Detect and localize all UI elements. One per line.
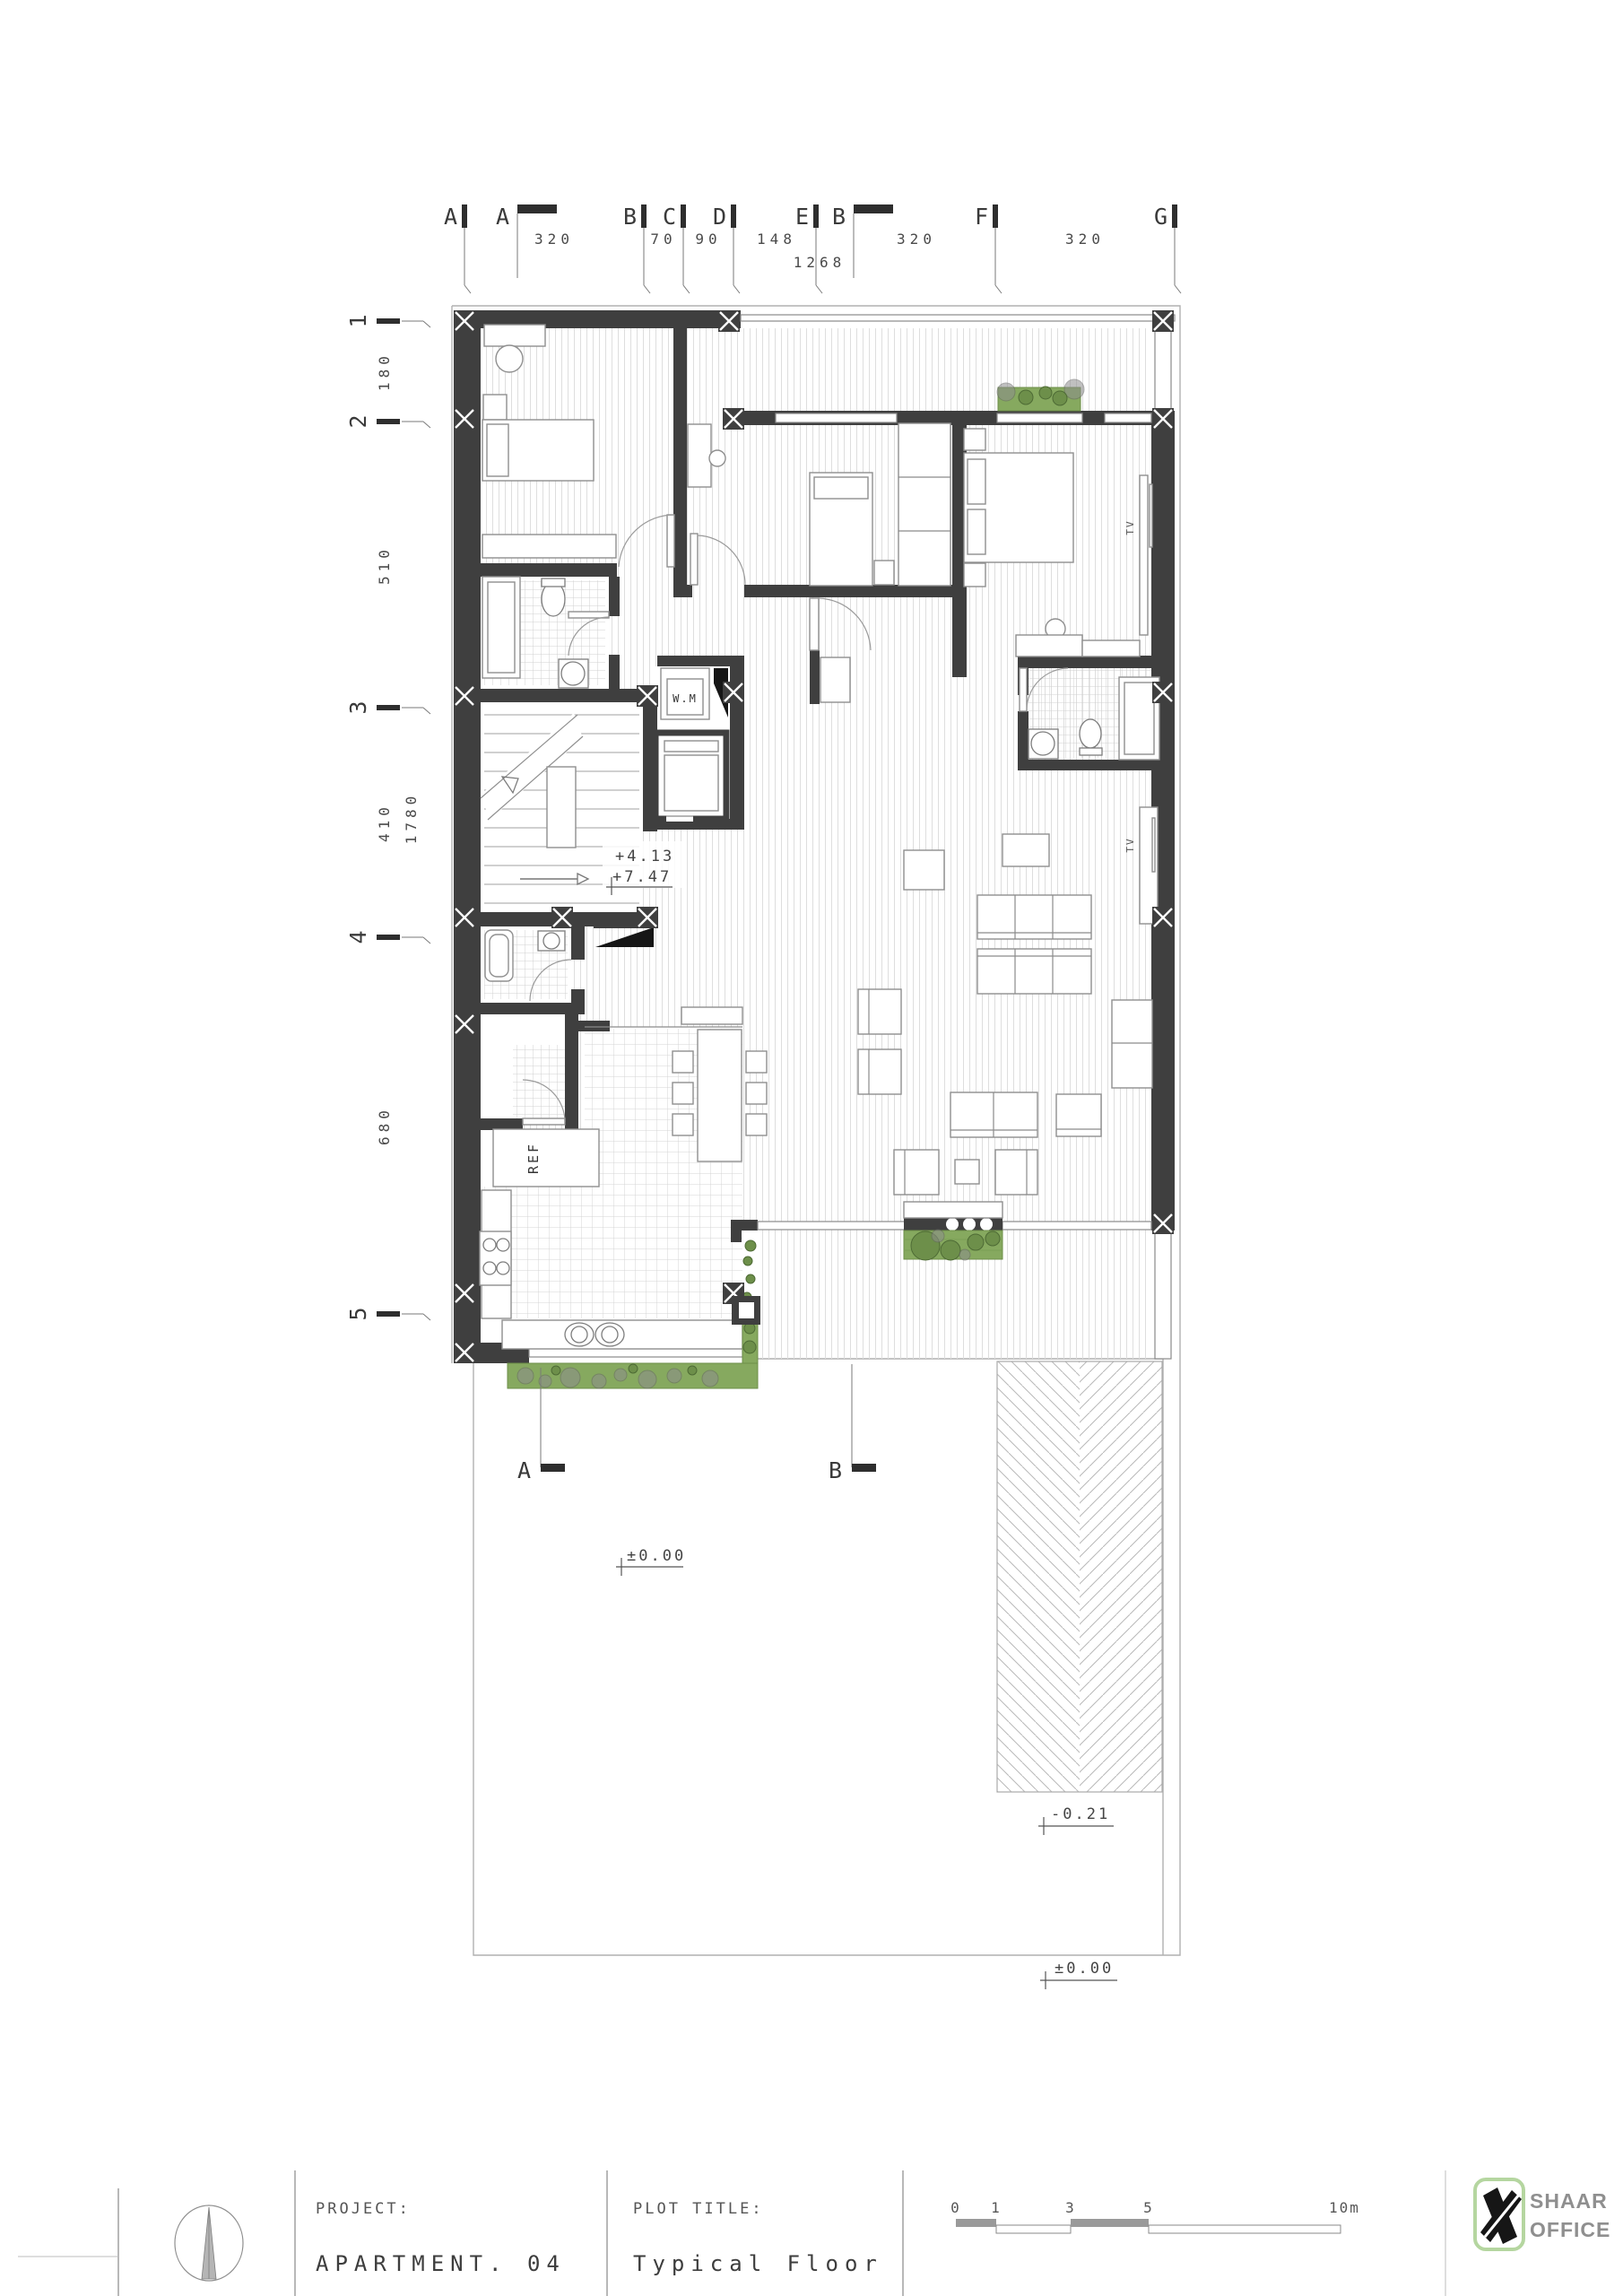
scale-tick-5: 5 [1143,2199,1154,2216]
bed1-south-wall [454,563,617,577]
column-icon [551,907,573,928]
bed2-lamp [709,450,725,466]
grid-row-label: 1 [345,314,371,327]
bed1-pillow [487,424,508,476]
balcony-parapet [741,315,1175,321]
grid-row-5: 5 [345,1307,430,1320]
column-icon [454,685,475,707]
chair [673,1083,693,1104]
dim-top: 148 [757,230,796,248]
section-bottom-a-label: A [517,1457,531,1483]
bed1-dresser [482,535,616,558]
master-window-1 [997,413,1082,422]
plot-title-value: Typical Floor [633,2251,883,2276]
bed2-nightstand [874,561,894,585]
column-icon [454,907,475,928]
level-stair-upper: +4.13 [615,848,674,865]
lounge-chair [894,1150,939,1195]
column-icon [1152,907,1174,928]
grid-row-1: 1 [345,314,430,327]
grid-row-3: 3 [345,700,430,714]
grid-row-label: 2 [345,414,371,428]
bedroom2-window [776,413,897,422]
bed1-stool [496,345,523,372]
bed2-wardrobe [898,423,950,586]
grid-col-label: E [795,204,809,230]
dim-left-total: 1780 [403,792,420,845]
fridge-box [493,1129,599,1187]
armchair [858,1049,901,1094]
project-label: PROJECT: [316,2200,411,2218]
dim-top: 320 [897,230,936,248]
dim-top: 320 [534,230,574,248]
chair [673,1114,693,1135]
armchair [1056,1094,1101,1136]
grid-col-label: G [1154,204,1167,230]
dim-top: 320 [1065,230,1105,248]
grid-col-D: D [713,204,740,293]
dim-top: 70 [650,230,676,248]
section-top-b-label: B [832,204,846,230]
master-bath-south-wall [1018,760,1163,770]
master-window-2 [1105,413,1151,422]
partition-bed1-bed2 [673,328,687,589]
kitchen-planter [508,1363,758,1388]
scale-bar: 0 1 3 5 10m [950,2199,1360,2233]
grid-row-4: 4 [345,930,430,944]
drawing-sheet: W.M [0,0,1623,2296]
logo-line2: OFFICE [1530,2218,1610,2241]
column-icon [718,310,740,332]
chaise [1112,1000,1152,1088]
grid-col-label: B [623,204,637,230]
kitchen-upper-cabinet [681,1007,742,1024]
dim-top-total: 1268 [794,254,846,271]
lounge-chair [995,1150,1037,1195]
column-icon [454,408,475,430]
grid-row-2: 2 [345,414,430,428]
grid-row-label: 4 [345,930,371,944]
grid-col-B: B [623,204,650,293]
grid-col-E: E [795,204,822,293]
master-nightstand-2 [964,563,985,587]
column-icon [1152,1213,1174,1234]
north-arrow-icon [175,2205,243,2281]
grid-col-label: C [663,204,676,230]
wm-label: W.M [673,692,698,705]
ref-label: REF [525,1142,542,1174]
project-value: APARTMENT. 04 [316,2251,566,2276]
grid-rows: 1 2 3 4 5 180 510 410 1780 680 [345,314,430,1320]
chair [673,1051,693,1073]
elevator [655,733,726,822]
column-icon [1152,310,1174,332]
tv-living-label: TV [1124,837,1136,852]
tv-bedroom-label: TV [1124,519,1136,535]
living-tv-icon [1152,818,1155,872]
grid-columns: A B C D E F G [444,204,1181,293]
grid-col-label: D [713,204,726,230]
column-icon [1152,682,1174,703]
title-block: PROJECT: APARTMENT. 04 PLOT TITLE: Typic… [18,2170,1610,2296]
hall-wall [810,650,820,704]
living-window-east [1002,1222,1151,1230]
master-south-wall [1018,656,1163,668]
scale-tick-0: 0 [950,2199,961,2216]
hall-cabinet [820,657,850,702]
grid-col-label: F [975,204,988,230]
master-toilet [1080,719,1101,748]
scale-tick-1: 1 [991,2199,1002,2216]
grid-col-C: C [663,204,690,293]
dim-left: 410 [376,803,393,842]
armchair [858,989,901,1034]
column-icon [454,310,475,332]
master-tv-icon [1150,484,1152,547]
storage-south-wall [454,1118,523,1130]
core-north-wall [454,689,657,702]
master-vanity-2 [1082,640,1140,657]
floor-plan-drawing: W.M [0,0,1623,2296]
exterior-wall-west [454,310,481,1363]
bed1-nightstand [483,395,507,420]
level-ramp: -0.21 [1051,1805,1110,1823]
column-icon [454,1283,475,1304]
grid-col-label: A [444,204,457,230]
grid-col-A: A [444,204,471,293]
level-street: ±0.00 [1055,1960,1114,1978]
level-stair-lower: +7.47 [612,868,672,886]
toilet-1 [542,582,565,616]
section-bottom-b-label: B [829,1457,842,1483]
dining-chair [1002,834,1049,866]
terrace-east-parapet [1155,1231,1171,1359]
scale-tick-10m: 10m [1329,2199,1360,2216]
kitchen-table [698,1030,742,1161]
dim-left: 510 [376,545,393,585]
column-icon [454,1342,475,1363]
bed2-closet [688,424,711,487]
grid-col-F: F [975,204,1002,293]
living-window-west [758,1222,906,1230]
section-top-a-label: A [496,204,509,230]
column-icon [723,682,744,703]
logo: SHAAR OFFICE [1475,2179,1610,2249]
ramp-hatch-left [997,1361,1080,1792]
column-icon [637,907,658,928]
storage-east-wall [565,1003,578,1130]
bed2-pillow [814,477,868,499]
column-icon [1152,408,1174,430]
column-icon [723,408,744,430]
dining-chair [904,850,944,890]
chair [746,1114,767,1135]
master-pillow-1 [968,459,985,504]
grid-row-label: 3 [345,700,371,714]
column-icon [454,1013,475,1035]
master-nightstand-1 [964,429,985,450]
stair-stringer [547,767,576,848]
dim-left: 180 [376,352,393,391]
bed1-desk [484,325,545,346]
master-pillow-2 [968,509,985,554]
column-icon [637,685,658,707]
logo-line1: SHAAR [1530,2189,1608,2213]
ramp-hatch-right [1080,1361,1162,1792]
dim-left: 680 [376,1106,393,1145]
living-window-planter [904,1230,1002,1260]
grid-col-G: G [1154,204,1181,293]
level-yard: ±0.00 [627,1547,686,1565]
pouf [955,1160,979,1184]
master-vanity-1 [1016,635,1082,657]
scale-tick-3: 3 [1065,2199,1076,2216]
bed2-south-wall [744,585,967,597]
chair [746,1083,767,1104]
plot-title-label: PLOT TITLE: [633,2200,764,2218]
master-tv-cabinet [1140,475,1148,635]
window-bench [904,1202,1002,1218]
storage-tiles [513,1045,565,1118]
grid-row-label: 5 [345,1307,371,1320]
dim-top: 90 [695,230,721,248]
chair [746,1051,767,1073]
